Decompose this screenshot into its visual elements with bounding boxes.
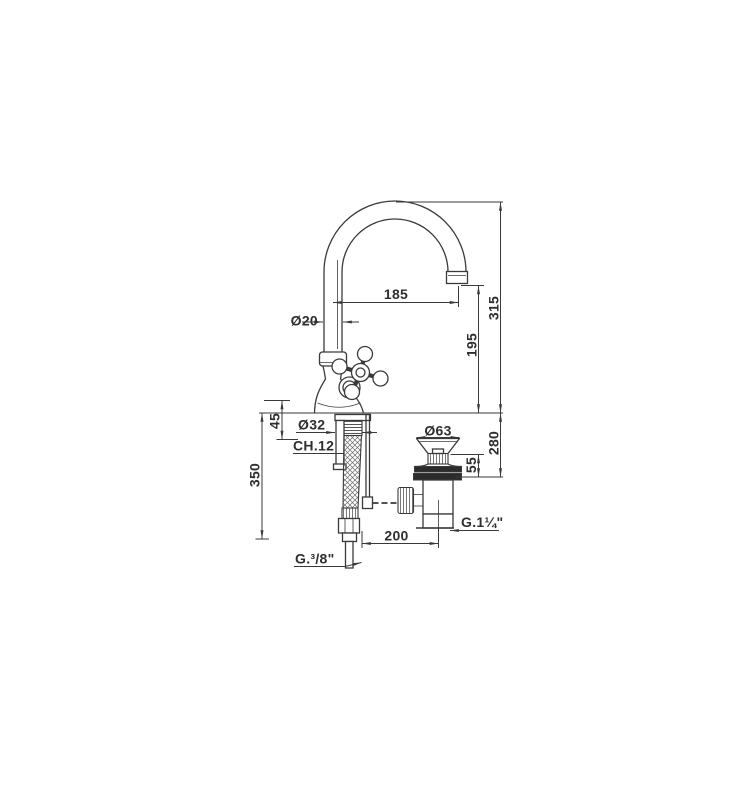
supply-inlet-pipe	[346, 542, 354, 569]
waste-flange-upper	[415, 467, 462, 473]
dim-spout-reach: 185	[384, 286, 408, 302]
pop-up-rod	[363, 415, 399, 509]
under-deck-assembly	[334, 415, 371, 569]
dim-spout-height: 315	[486, 296, 502, 320]
dimension-labels: 185 Ø20 315 195 45 Ø32 CH.12 350 Ø63 55 …	[247, 286, 504, 567]
rod-joint-block	[363, 497, 373, 509]
aerator	[447, 272, 468, 284]
dim-waste-thread: G.1¼"	[461, 514, 503, 530]
dim-supply-thread: G.³/8"	[295, 551, 335, 567]
braided-supply-hose	[343, 436, 362, 509]
threaded-shank	[344, 421, 362, 436]
dim-waste-offset: 200	[384, 528, 408, 544]
waste-tailpiece	[423, 514, 453, 528]
rod-clamp-nut	[398, 488, 414, 514]
dim-shank-diameter: Ø32	[298, 417, 325, 433]
hose-knurled-collar	[342, 508, 358, 519]
dim-spout-clearance: 195	[464, 333, 480, 357]
lift-rod	[366, 415, 370, 498]
faucet-technical-drawing: 185 Ø20 315 195 45 Ø32 CH.12 350 Ø63 55 …	[0, 0, 739, 800]
plug-knurled-neck	[428, 454, 448, 465]
dim-hose-length: 350	[247, 463, 263, 487]
hose-hex-nut	[339, 519, 360, 534]
dim-waste-total-height: 280	[486, 431, 502, 455]
waste-flange-lower	[414, 474, 462, 481]
dim-waste-cap-diameter: Ø63	[424, 423, 451, 439]
faucet-spec-page: 185 Ø20 315 195 45 Ø32 CH.12 350 Ø63 55 …	[0, 0, 739, 800]
plug-pin	[433, 449, 444, 454]
handle-hub	[352, 364, 370, 382]
rod-guide-tube	[336, 421, 344, 469]
mounting-flange	[335, 415, 371, 421]
dim-shank-wrench: CH.12	[293, 438, 334, 454]
handle-ball-n	[358, 347, 373, 362]
dim-spout-tube-diameter: Ø20	[291, 313, 318, 329]
handle-ball-e	[373, 371, 388, 386]
spout-gooseneck	[324, 201, 468, 352]
dim-deck-thickness: 45	[267, 413, 283, 429]
pop-up-waste	[398, 439, 462, 529]
handle-ball-w	[332, 359, 347, 374]
dim-waste-body-height: 55	[463, 457, 479, 473]
waste-body	[423, 480, 453, 514]
handle-ball-s	[345, 385, 360, 400]
